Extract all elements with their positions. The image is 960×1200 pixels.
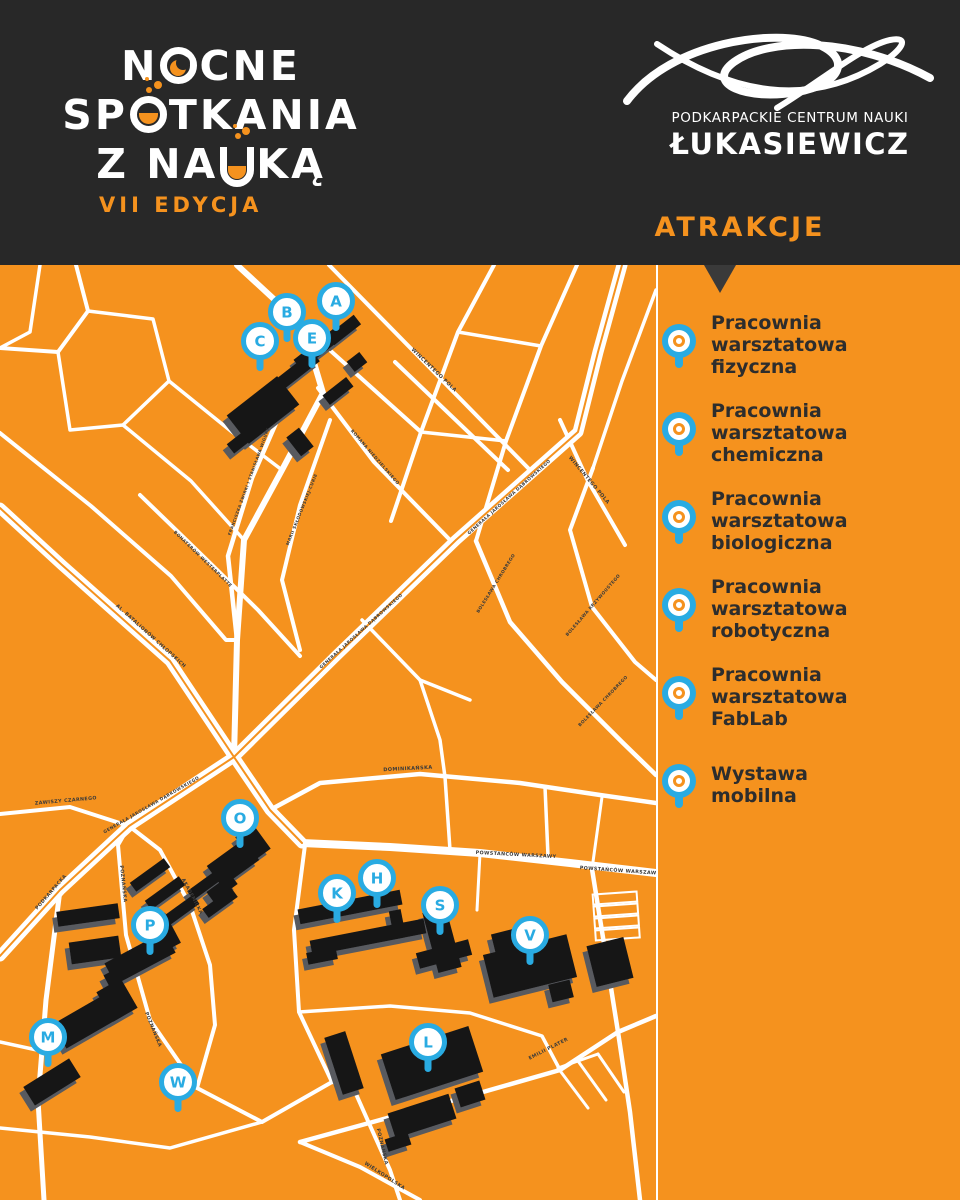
pin-letter: K [331,885,344,903]
attraction-label: Pracownia warsztatowa biologiczna [711,488,848,554]
map-pin-icon [662,412,696,460]
map-pin-icon [662,500,696,548]
flask-u-glyph-icon [220,147,254,187]
pin-letter: B [281,304,292,322]
pointer-triangle-icon [704,265,736,293]
map-pin-icon [662,764,696,812]
attraction-item: Pracownia warsztatowa biologiczna [662,488,958,554]
pin-letter: M [41,1029,56,1047]
org-line1: PODKARPACKIE CENTRUM NAUKI [630,110,950,126]
title-line: SPTKANIA [55,91,367,140]
attraction-item: Pracownia warsztatowa fizyczna [662,312,958,378]
pin-letter: S [435,897,446,915]
org-line2: ŁUKASIEWICZ [630,127,950,161]
edition-label: VII EDYCJA [55,193,367,217]
attraction-label: Pracownia warsztatowa chemiczna [711,400,848,466]
pin-letter: E [307,330,317,348]
poster: { "header": { "title_lines": [ {"text": … [0,0,960,1200]
pin-letter: L [423,1034,433,1052]
pin-dot-icon [673,599,685,611]
flask-glyph-icon [130,96,167,133]
map-pin-icon [662,676,696,724]
map-background [0,265,656,1200]
attraction-item: Pracownia warsztatowa chemiczna [662,400,958,466]
attraction-item: Wystawa mobilna [662,752,958,818]
pin-dot-icon [673,687,685,699]
attraction-label: Wystawa mobilna [711,763,808,807]
attraction-label: Pracownia warsztatowa FabLab [711,664,848,730]
attraction-label: Pracownia warsztatowa robotyczna [711,576,848,642]
event-title: NCNESPTKANIAZ NAKĄ VII EDYCJA [55,42,367,217]
pin-dot-icon [673,423,685,435]
pin-letter: P [145,917,156,935]
pin-letter: O [234,810,247,828]
attraction-item: Pracownia warsztatowa robotyczna [662,576,958,642]
pin-letter: H [371,870,384,888]
attractions-legend: Pracownia warsztatowa fizycznaPracownia … [662,312,958,840]
org-name: PODKARPACKIE CENTRUM NAUKI ŁUKASIEWICZ [630,110,950,161]
pin-dot-icon [673,335,685,347]
title-lines: NCNESPTKANIAZ NAKĄ [55,42,367,189]
attraction-label: Pracownia warsztatowa fizyczna [711,312,848,378]
moon-o-glyph-icon [160,47,197,84]
pin-letter: A [330,293,342,311]
attraction-item: Pracownia warsztatowa FabLab [662,664,958,730]
lukasiewicz-swoosh-icon [612,26,942,118]
attractions-heading: ATRAKCJE [645,212,835,243]
pin-letter: V [524,927,536,945]
title-line: NCNE [55,42,367,91]
pin-letter: C [254,333,265,351]
city-map: WINCENTEGO POLAWINCENTEGO POLAROMANA NIE… [0,265,656,1200]
map-pin-icon [662,324,696,372]
map-pin-icon [662,588,696,636]
pin-dot-icon [673,775,685,787]
pin-dot-icon [673,511,685,523]
pin-letter: W [170,1074,187,1092]
title-line: Z NAKĄ [55,140,367,189]
